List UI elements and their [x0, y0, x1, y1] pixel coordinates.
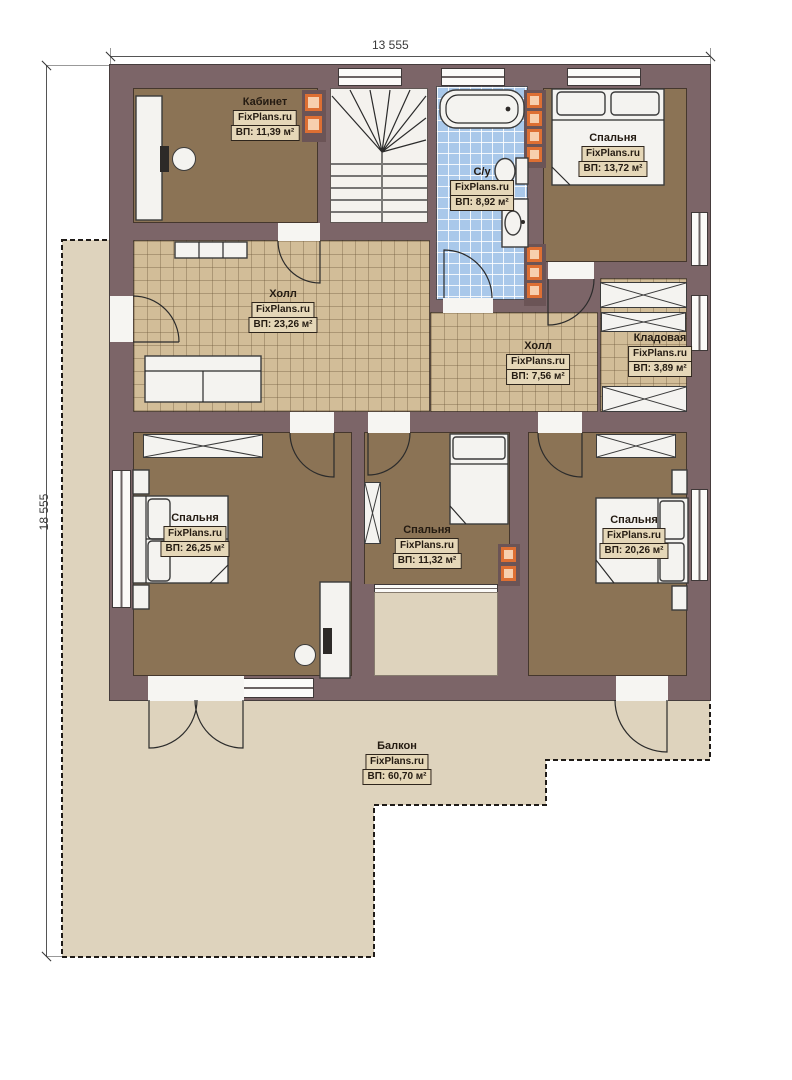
storage-shelf [600, 282, 687, 308]
window-right-bedroom-top [691, 212, 708, 266]
chimney-block-icon [527, 147, 542, 162]
window-bottom-bedroom-left [240, 678, 314, 698]
room-name: Балкон [377, 740, 417, 752]
window-right-bedroom-bottom [691, 489, 708, 581]
room-area: ВП: 60,70 м² [362, 769, 431, 785]
room-area: ВП: 3,89 м² [628, 361, 692, 377]
stairwell-floor [330, 88, 428, 223]
room-area: ВП: 26,25 м² [160, 541, 229, 557]
room-label-hall-main: Холл FixPlans.ru ВП: 23,26 м² [248, 288, 317, 333]
watermark: FixPlans.ru [506, 354, 570, 370]
chimney-block-icon [501, 547, 516, 562]
room-name: Холл [269, 288, 297, 300]
window-top-stairs [338, 68, 402, 86]
room-label-bedroom-bottom-left: Спальня FixPlans.ru ВП: 26,25 м² [160, 512, 229, 557]
room-label-bedroom-bottom-middle: Спальня FixPlans.ru ВП: 11,32 м² [393, 524, 462, 569]
dimension-height: 18 555 [37, 482, 51, 542]
window-right-storage [691, 295, 708, 351]
door-opening-bedroom-bottom-left [290, 412, 334, 433]
nook-floor [374, 592, 498, 676]
nook-wall-right [498, 584, 512, 676]
wardrobe-bedroom-bottom-right [596, 434, 676, 458]
door-opening-bedroom-bottom-middle [368, 412, 410, 433]
room-name: Спальня [610, 514, 658, 526]
chimney-block-icon [527, 111, 542, 126]
door-opening-balcony-left [148, 676, 244, 701]
room-label-balcony: Балкон FixPlans.ru ВП: 60,70 м² [362, 740, 431, 785]
storage-shelf [601, 312, 686, 332]
room-name: Кабинет [243, 96, 288, 108]
room-area: ВП: 13,72 м² [578, 161, 647, 177]
desk-chair [294, 644, 316, 666]
watermark: FixPlans.ru [581, 146, 645, 162]
chimney-block-icon [527, 283, 542, 298]
watermark: FixPlans.ru [602, 528, 666, 544]
wardrobe-bedroom-bottom-middle [364, 482, 381, 544]
watermark: FixPlans.ru [365, 754, 429, 770]
room-name: С/у [473, 166, 490, 178]
chimney-block-icon [527, 265, 542, 280]
room-area: ВП: 11,32 м² [393, 553, 462, 569]
computer-icon [160, 146, 169, 172]
door-opening-bedroom-bottom-right [538, 412, 582, 433]
room-label-hall-small: Холл FixPlans.ru ВП: 7,56 м² [506, 340, 570, 385]
room-name: Кладовая [634, 332, 687, 344]
office-chair [172, 147, 196, 171]
chimney-block-icon [527, 93, 542, 108]
chimney-block-icon [305, 94, 322, 111]
room-label-storage: Кладовая FixPlans.ru ВП: 3,89 м² [628, 332, 692, 377]
room-area: ВП: 11,39 м² [231, 125, 300, 141]
wardrobe-bedroom-bottom-left [143, 434, 263, 458]
door-opening-balcony-right [616, 676, 668, 701]
door-opening-hall-terrace [110, 296, 133, 342]
room-name: Холл [524, 340, 552, 352]
watermark: FixPlans.ru [628, 346, 692, 362]
watermark: FixPlans.ru [163, 526, 227, 542]
computer-icon [323, 628, 332, 654]
chimney-block-icon [527, 129, 542, 144]
room-label-bedroom-bottom-right: Спальня FixPlans.ru ВП: 20,26 м² [599, 514, 668, 559]
chimney-block-icon [527, 247, 542, 262]
watermark: FixPlans.ru [251, 302, 315, 318]
window-top-bathroom [441, 68, 505, 86]
chimney-block-icon [305, 116, 322, 133]
room-name: Спальня [403, 524, 451, 536]
door-opening-bathroom [443, 298, 493, 313]
room-area: ВП: 23,26 м² [248, 317, 317, 333]
room-label-bedroom-top-right: Спальня FixPlans.ru ВП: 13,72 м² [578, 132, 647, 177]
floor-plan: Кабинет FixPlans.ru ВП: 11,39 м² С/у Fix… [0, 0, 792, 1080]
window-top-bedroom [567, 68, 641, 86]
door-opening-bedroom-top-right [548, 262, 594, 279]
extension-line [46, 65, 110, 66]
watermark: FixPlans.ru [450, 180, 514, 196]
chimney-block-icon [501, 566, 516, 581]
dimension-width: 13 555 [372, 38, 409, 52]
room-area: ВП: 8,92 м² [450, 195, 514, 211]
watermark: FixPlans.ru [233, 110, 297, 126]
room-label-bathroom: С/у FixPlans.ru ВП: 8,92 м² [450, 166, 514, 211]
room-area: ВП: 7,56 м² [506, 369, 570, 385]
storage-shelf [602, 386, 687, 412]
room-label-office: Кабинет FixPlans.ru ВП: 11,39 м² [231, 96, 300, 141]
door-opening-office [278, 223, 320, 241]
window-left-bedroom [112, 470, 131, 608]
room-area: ВП: 20,26 м² [599, 543, 668, 559]
room-name: Спальня [171, 512, 219, 524]
dimension-line-top [110, 56, 710, 57]
watermark: FixPlans.ru [395, 538, 459, 554]
room-name: Спальня [589, 132, 637, 144]
